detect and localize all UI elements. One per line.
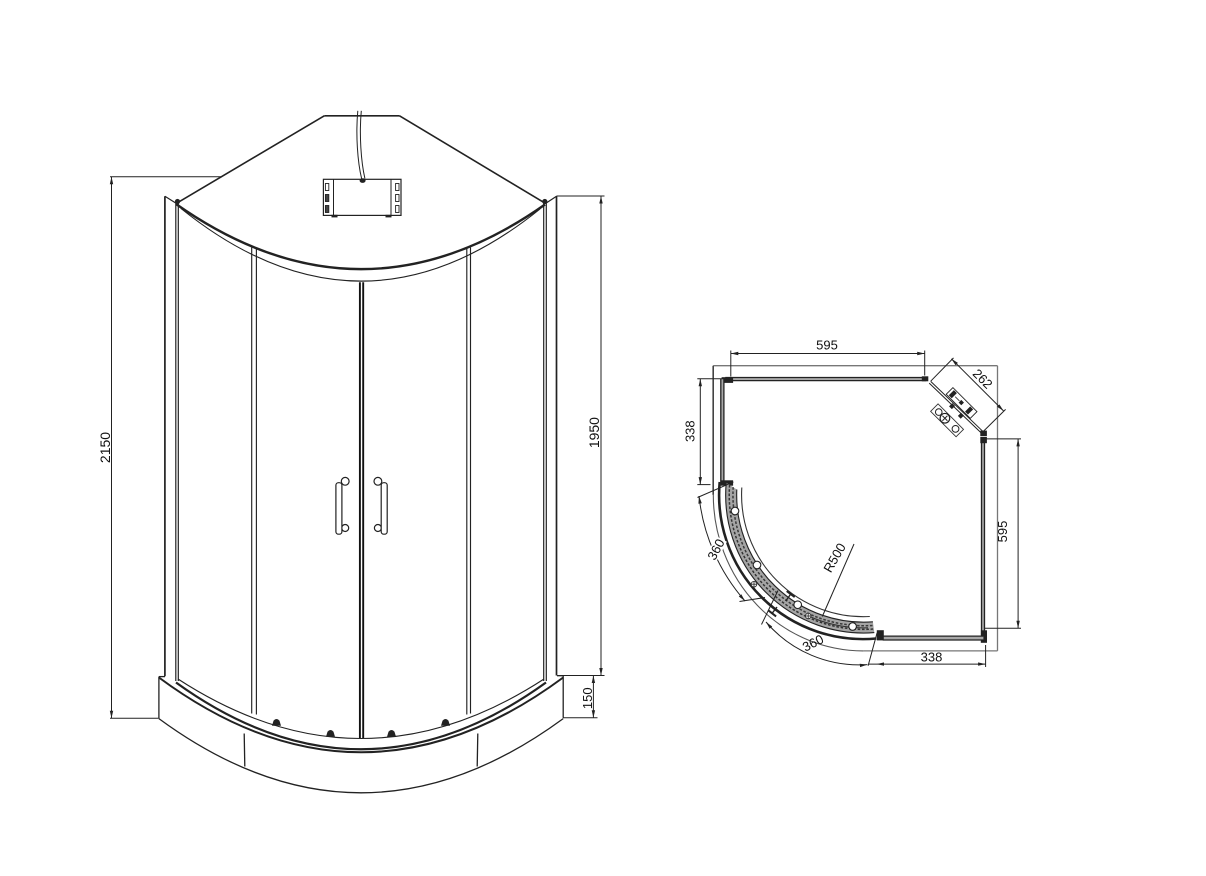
svg-text:360: 360 (800, 631, 826, 654)
svg-text:262: 262 (970, 366, 996, 392)
svg-text:595: 595 (816, 338, 838, 353)
svg-text:150: 150 (580, 687, 595, 709)
svg-text:2150: 2150 (97, 432, 113, 463)
svg-text:R500: R500 (820, 541, 849, 575)
svg-text:338: 338 (921, 650, 943, 665)
svg-text:1950: 1950 (586, 417, 602, 448)
svg-text:595: 595 (995, 521, 1010, 543)
svg-text:338: 338 (682, 420, 697, 442)
